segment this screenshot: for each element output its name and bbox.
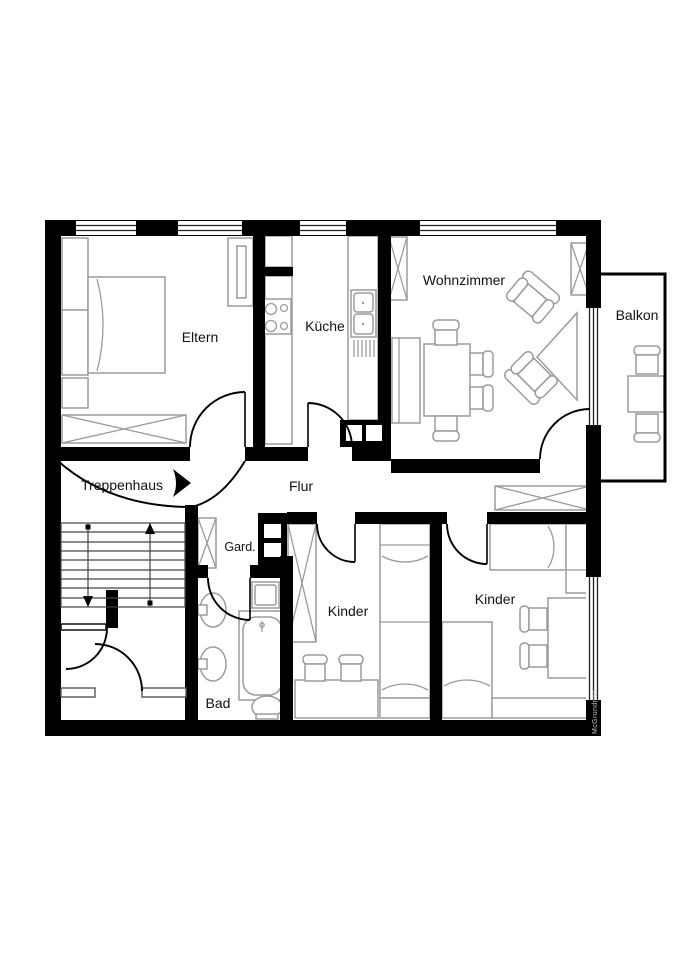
wall-kinder1-north (287, 512, 317, 524)
door-eltern (190, 392, 245, 447)
arrow-up-icon (145, 523, 155, 534)
stairs-icon (61, 523, 185, 607)
wall-kinder1-kinder2 (430, 524, 442, 736)
room-wohnzimmer-furniture (389, 237, 589, 441)
wall-understairs-stub (106, 590, 118, 628)
door-wohnzimmer (540, 409, 590, 459)
wall-bad-north (198, 565, 208, 578)
stool-icon (303, 655, 327, 681)
flur-furniture (495, 486, 590, 510)
tall-cabinet-icon (228, 238, 253, 306)
wall-wohnzimmer-south (391, 459, 540, 473)
chair-icon (520, 606, 547, 632)
room-eltern-furniture (62, 238, 253, 443)
wall-stub (265, 267, 293, 276)
balcony-table-icon (628, 376, 664, 412)
room-label-kueche: Küche (305, 318, 345, 334)
wall-eltern-kueche (253, 236, 265, 447)
stove-icon (263, 299, 291, 334)
wall-bad-north (250, 565, 280, 578)
shelf-icon (62, 238, 88, 408)
kitchen-cabinet-icon (265, 236, 292, 267)
door-understairs (66, 628, 107, 669)
wall-kinder2-north (430, 512, 447, 524)
room-label-bad: Bad (206, 695, 231, 711)
door-building-entrance (95, 644, 142, 691)
dresser-icon (380, 698, 430, 718)
single-bed-icon (380, 524, 430, 698)
wall-kinder1-north (355, 512, 430, 524)
armchair-icon (505, 269, 562, 325)
watermark-text: McGrundriss (592, 690, 599, 734)
room-label-treppenhaus: Treppenhaus (81, 477, 163, 493)
stair-run-start-dot (86, 525, 91, 530)
stool-icon (339, 655, 363, 681)
wall-outer-left (45, 220, 61, 736)
wall-kueche-wohnzimmer (378, 236, 391, 445)
door-kinder1 (317, 524, 355, 562)
wardrobe-crossed-icon (62, 415, 186, 443)
desk-icon (548, 598, 590, 678)
wardrobe-crossed-icon (389, 237, 407, 300)
sideboard-icon (392, 338, 420, 423)
room-kinder1-furniture (288, 524, 430, 718)
wall-bad-kinder (280, 556, 293, 736)
wall-outer-right (586, 425, 601, 577)
stair-run-start-dot (148, 601, 153, 606)
room-label-flur: Flur (289, 478, 313, 494)
window-sidelight (61, 688, 186, 697)
wall-kinder2-north (487, 512, 601, 524)
balcony-door-window (586, 308, 601, 425)
bathtub-icon (239, 611, 286, 700)
room-label-kinder2: Kinder (475, 591, 516, 607)
washbasin-icon (198, 647, 226, 681)
chair-icon (520, 643, 547, 669)
room-label-kinder1: Kinder (328, 603, 369, 619)
chair-icon (470, 351, 493, 377)
direction-arrow-icon (173, 469, 191, 497)
chair-icon (470, 385, 493, 411)
wall-outer-right (586, 220, 601, 308)
door-kinder2 (447, 524, 487, 564)
washing-machine-icon (252, 582, 279, 608)
toilet-icon (252, 696, 282, 719)
chair-icon (433, 320, 459, 345)
wall-treppenhaus-east (185, 505, 198, 736)
duct-shaft (340, 420, 391, 447)
garderobe-furniture (198, 518, 216, 568)
chair-icon (634, 346, 660, 374)
floorplan-page: Eltern Küche Wohnzimmer Balkon Treppenha… (0, 0, 679, 960)
window-wohnzimmer (420, 221, 556, 235)
wardrobe-crossed-icon (495, 486, 590, 510)
window-eltern-2 (178, 221, 242, 235)
window-kinder2 (586, 577, 601, 700)
wall-flur-north (352, 447, 391, 461)
chair-icon (634, 414, 660, 442)
room-kinder2-furniture (442, 524, 590, 718)
room-label-wohnzimmer: Wohnzimmer (423, 272, 506, 288)
chair-icon (433, 416, 459, 441)
desk-icon (295, 680, 378, 718)
window-eltern-1 (76, 221, 136, 235)
window-kueche (300, 221, 346, 235)
low-cabinet-icon (492, 698, 588, 718)
room-label-balkon: Balkon (616, 307, 659, 323)
room-label-eltern: Eltern (182, 329, 219, 345)
room-label-garderobe: Gard. (224, 540, 255, 554)
thin-wall-understairs (61, 624, 106, 630)
balkon-furniture (628, 346, 664, 442)
single-bed-icon (490, 524, 566, 570)
dining-table-icon (424, 344, 470, 416)
bedside-cabinet-icon (566, 524, 588, 593)
single-bed-icon (442, 622, 492, 718)
floorplan-svg: Eltern Küche Wohnzimmer Balkon Treppenha… (0, 0, 679, 960)
double-bed-icon (88, 277, 165, 373)
wall-outer-bottom (45, 720, 601, 736)
arrow-down-icon (83, 596, 93, 607)
wardrobe-crossed-icon (198, 518, 216, 568)
wall-flur-north (245, 447, 308, 461)
wall-flur-north (45, 447, 190, 461)
